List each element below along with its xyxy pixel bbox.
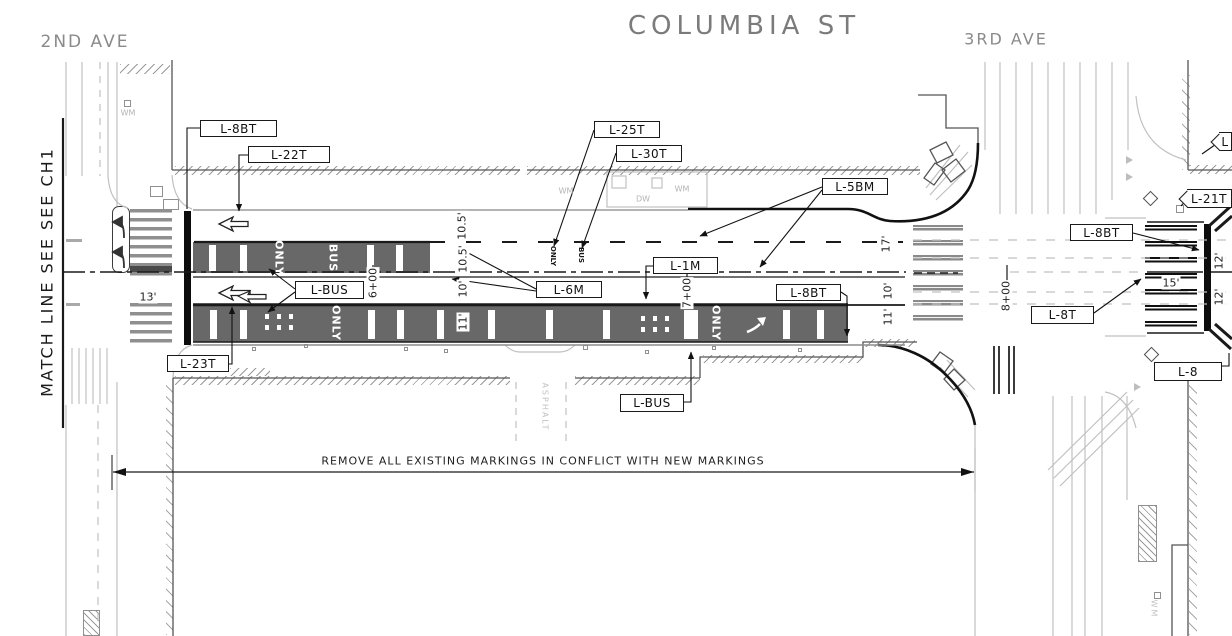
label-l8t-text: L-8T	[1049, 308, 1077, 322]
label-l5bm: L-5BM	[822, 178, 888, 195]
label-l25t-text: L-25T	[609, 123, 645, 137]
util-wm-4: WM	[1150, 600, 1159, 619]
label-l8-text: L-8	[1178, 365, 1198, 379]
label-l8: L-8	[1154, 362, 1222, 381]
label-l21t-hex: L-21T	[1187, 189, 1232, 208]
label-lbus-mid-text: L-BUS	[311, 283, 349, 297]
label-l1m-text: L-1M	[670, 259, 701, 273]
dim-11-a: 11'	[457, 312, 470, 331]
station-8: 8+00	[1000, 280, 1013, 312]
label-l21t-hex-text: L-21T	[1191, 192, 1227, 206]
dim-12-b: 12'	[1213, 287, 1226, 306]
label-l8bt-mid-text: L-8BT	[790, 286, 827, 300]
label-lbus-mid: L-BUS	[295, 281, 364, 299]
util-wm-2: WM	[559, 187, 574, 196]
label-l8bt-top-text: L-8BT	[220, 122, 257, 136]
plan-drawing: COLUMBIA ST 2ND AVE 3RD AVE MATCH LINE S…	[0, 0, 1232, 636]
pavement-bus-sm: BUS	[577, 247, 585, 263]
label-l1m: L-1M	[653, 257, 718, 274]
label-lhex-top-text: L	[1221, 135, 1228, 149]
label-l8bt-right: L-8BT	[1070, 224, 1133, 241]
dim-13: 13'	[138, 291, 157, 304]
label-l6m-text: L-6M	[554, 283, 585, 297]
label-l22t-text: L-22T	[271, 148, 307, 162]
pavement-only-sm: ONLY	[549, 246, 557, 266]
dim-12-a: 12'	[1213, 251, 1226, 270]
pavement-only-3: ONLY	[710, 305, 723, 341]
label-l22t: L-22T	[248, 146, 330, 163]
dim-10-5-b: 10.5'	[457, 244, 470, 274]
label-lbus-bottom: L-BUS	[620, 394, 684, 412]
label-lbus-bottom-text: L-BUS	[633, 396, 671, 410]
label-l25t: L-25T	[594, 121, 660, 138]
dim-11-b: 11'	[882, 307, 895, 326]
label-lhex-top: L	[1219, 132, 1232, 151]
label-l23t: L-23T	[167, 355, 229, 372]
label-l8bt-top: L-8BT	[200, 120, 277, 137]
pavement-bus-1: BUS	[327, 244, 340, 272]
util-wm-1: WM	[121, 109, 136, 118]
label-l6m: L-6M	[536, 281, 602, 298]
dim-10-5-a: 10.5'	[456, 211, 469, 241]
pavement-only-2: ONLY	[330, 305, 343, 341]
label-l8bt-mid: L-8BT	[776, 284, 841, 301]
label-l30t: L-30T	[616, 145, 682, 162]
station-7: 7+00	[681, 277, 694, 309]
dim-17: 17'	[880, 234, 893, 253]
surface-asphalt: ASPHALT	[541, 382, 550, 431]
label-l8t: L-8T	[1031, 306, 1094, 324]
dim-10-a: 10'	[457, 279, 470, 298]
label-l5bm-text: L-5BM	[835, 180, 875, 194]
dim-15: 15'	[1161, 277, 1180, 290]
label-l8bt-right-text: L-8BT	[1083, 226, 1120, 240]
dim-10-b: 10'	[882, 281, 895, 300]
label-l30t-text: L-30T	[631, 147, 667, 161]
label-l23t-text: L-23T	[180, 357, 216, 371]
station-6: 6+00	[367, 267, 380, 299]
util-wm-3: WM	[675, 185, 690, 194]
pavement-only-1: ONLY	[273, 240, 286, 276]
util-dw: DW	[636, 195, 650, 204]
